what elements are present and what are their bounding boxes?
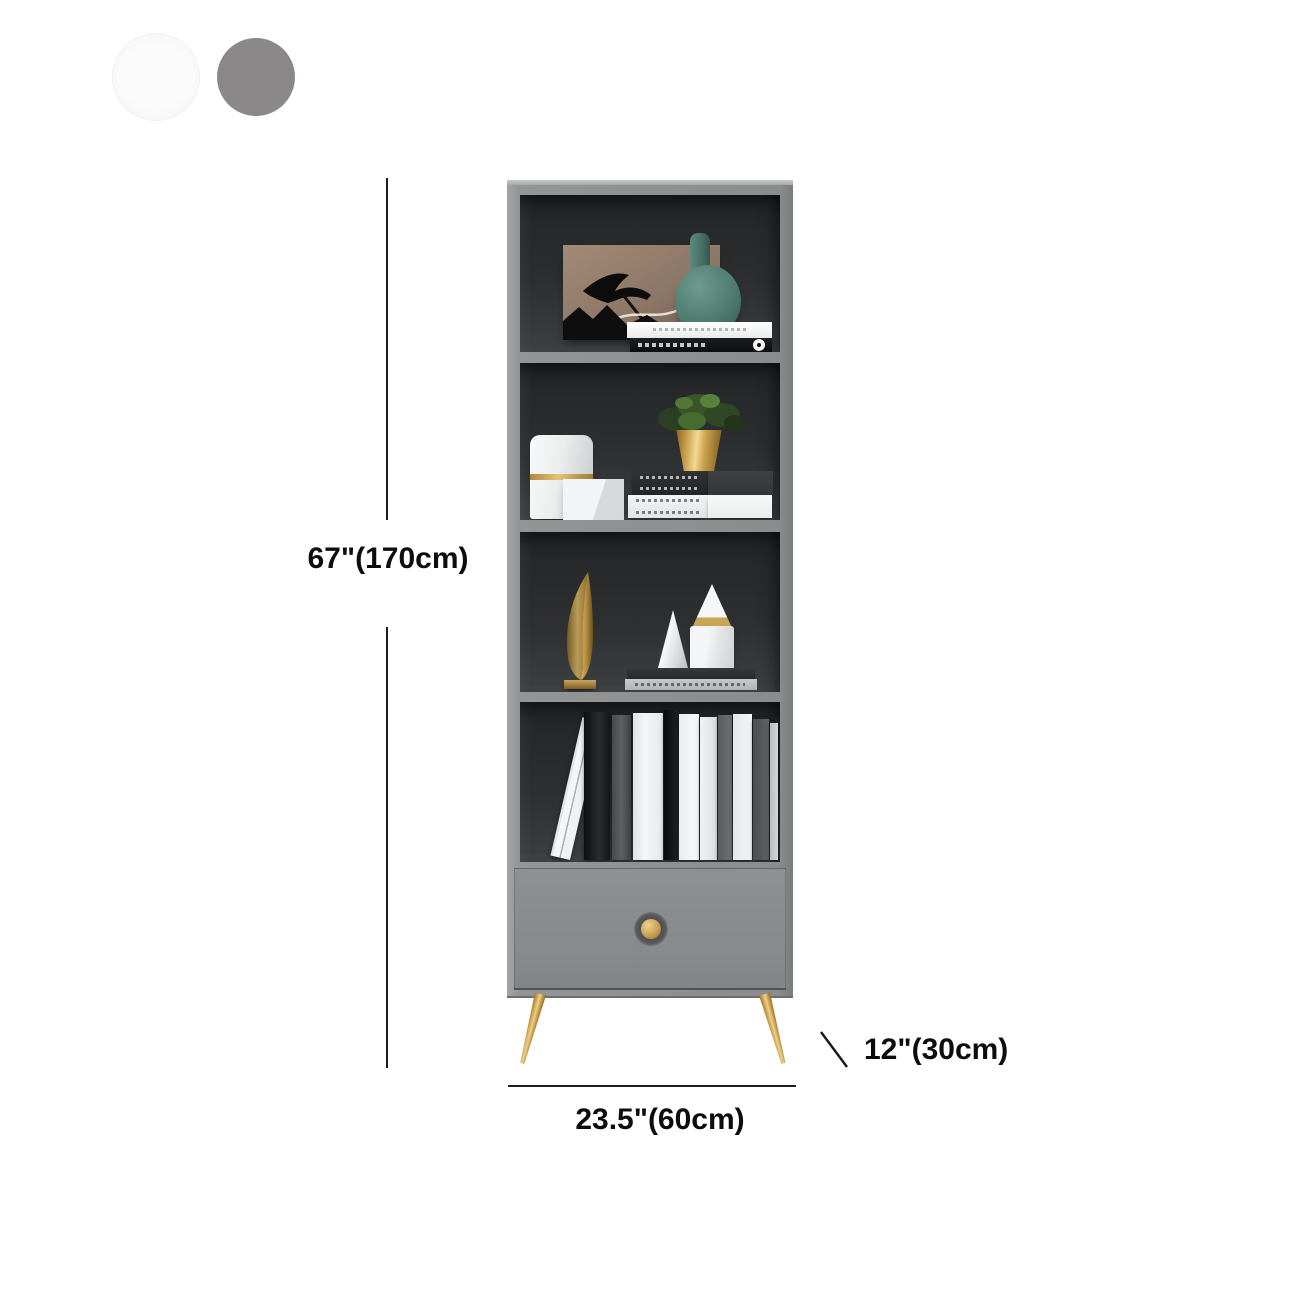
drawer-knob[interactable] — [641, 919, 661, 939]
height-dimension-line-bottom — [386, 627, 388, 1068]
front-left-leg — [515, 992, 548, 1065]
gold-sculpture — [562, 570, 598, 682]
bookcase-bottom-edge — [507, 996, 793, 998]
depth-dimension-tick — [818, 1030, 852, 1070]
stacked-books-dark — [632, 471, 708, 495]
stacked-books-white — [628, 495, 708, 518]
potted-plant-foliage — [648, 389, 750, 437]
marble-cylinder — [690, 626, 734, 670]
flat-book-black — [630, 338, 772, 352]
shelf-opening-3 — [520, 532, 780, 692]
flat-book-gray — [625, 679, 757, 690]
book-spine — [633, 713, 663, 860]
color-swatch-white[interactable] — [112, 33, 200, 121]
bookcase — [507, 180, 793, 998]
width-dimension-label: 23.5"(60cm) — [540, 1103, 780, 1137]
shelf-opening-2 — [520, 363, 780, 520]
marble-cone — [692, 584, 732, 628]
stacked-books-dark-edge — [708, 471, 773, 495]
book-spine — [700, 717, 717, 860]
product-dimension-image: 67"(170cm) 23.5"(60cm) 12"(30cm) — [0, 0, 1300, 1300]
sculpture-base — [564, 680, 596, 689]
book-spine — [612, 715, 631, 860]
book-spine — [664, 710, 678, 860]
book-spine — [733, 714, 752, 860]
book-spine — [753, 719, 769, 860]
stacked-books-white-edge — [708, 495, 772, 518]
flat-book-dark — [627, 668, 755, 679]
book-spine — [679, 714, 699, 860]
book-spine — [718, 715, 732, 860]
shelf-opening-4 — [520, 702, 780, 862]
front-right-leg — [757, 992, 790, 1065]
book-spine — [770, 723, 778, 860]
height-dimension-label: 67"(170cm) — [268, 542, 508, 576]
width-dimension-line — [508, 1085, 796, 1087]
depth-dimension-label: 12"(30cm) — [864, 1033, 1008, 1067]
height-dimension-line-top — [386, 178, 388, 520]
color-swatch-gray[interactable] — [217, 38, 295, 116]
shelf-opening-1 — [520, 195, 780, 352]
flat-book-white — [627, 322, 772, 338]
gold-plant-pot — [672, 430, 726, 471]
book-spine — [584, 712, 610, 860]
bookcase-top-face — [507, 180, 793, 185]
shelf-books-row — [520, 702, 780, 862]
book-logo-dot-icon — [753, 339, 765, 351]
white-cone — [658, 610, 688, 668]
white-cube — [563, 479, 624, 520]
